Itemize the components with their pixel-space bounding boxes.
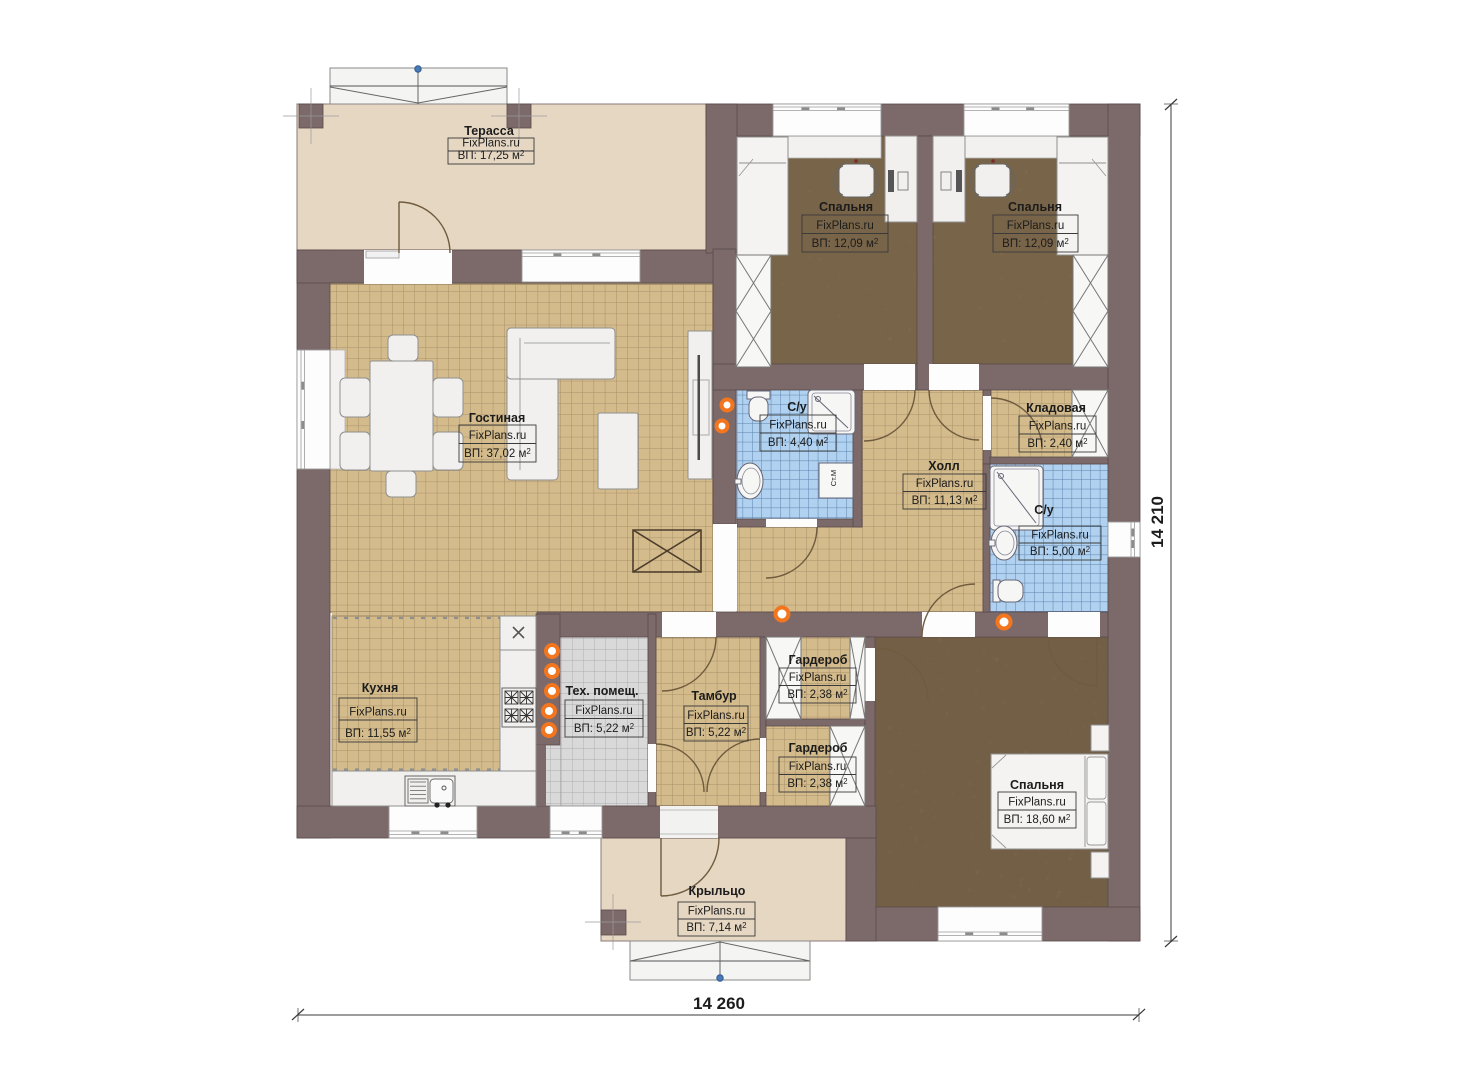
svg-text:ВП: 5,22 м2: ВП: 5,22 м2 [686,726,747,739]
svg-text:FixPlans.ru: FixPlans.ru [1029,421,1087,433]
svg-text:ВП: 7,14 м2: ВП: 7,14 м2 [686,921,747,934]
svg-text:FixPlans.ru: FixPlans.ru [1031,530,1089,542]
svg-text:ВП: 11,13 м2: ВП: 11,13 м2 [912,494,978,507]
svg-text:FixPlans.ru: FixPlans.ru [789,672,847,684]
svg-text:Крыльцо: Крыльцо [689,884,746,898]
svg-text:ВП: 12,09 м2: ВП: 12,09 м2 [812,237,879,250]
svg-text:FixPlans.ru: FixPlans.ru [916,478,974,490]
svg-text:ВП: 37,02 м2: ВП: 37,02 м2 [464,447,531,460]
svg-text:Гардероб: Гардероб [788,653,847,667]
svg-text:Гостиная: Гостиная [469,411,526,425]
svg-text:14 210: 14 210 [1148,496,1167,548]
svg-text:С/у: С/у [787,400,807,414]
svg-text:Ст.М: Ст.М [829,470,838,486]
svg-text:Терасса: Терасса [464,124,515,138]
svg-text:Тамбур: Тамбур [691,689,737,703]
svg-text:14 260: 14 260 [693,994,745,1013]
svg-text:FixPlans.ru: FixPlans.ru [469,430,527,442]
svg-text:FixPlans.ru: FixPlans.ru [687,710,745,722]
svg-text:Спальня: Спальня [1010,778,1064,792]
svg-text:Спальня: Спальня [819,200,873,214]
svg-text:Тех. помещ.: Тех. помещ. [566,684,639,698]
svg-text:Кухня: Кухня [362,681,399,695]
svg-text:Спальня: Спальня [1008,200,1062,214]
svg-text:ВП: 17,25 м2: ВП: 17,25 м2 [458,149,525,162]
svg-text:ВП: 18,60 м2: ВП: 18,60 м2 [1004,813,1071,826]
svg-text:FixPlans.ru: FixPlans.ru [816,220,874,232]
svg-text:FixPlans.ru: FixPlans.ru [1007,220,1065,232]
svg-text:FixPlans.ru: FixPlans.ru [688,906,746,918]
svg-text:FixPlans.ru: FixPlans.ru [462,138,520,150]
svg-text:ВП: 5,22 м2: ВП: 5,22 м2 [574,722,635,735]
svg-text:FixPlans.ru: FixPlans.ru [1008,797,1066,809]
svg-text:FixPlans.ru: FixPlans.ru [349,707,407,719]
svg-text:ВП: 2,38 м2: ВП: 2,38 м2 [787,777,848,790]
svg-text:Кладовая: Кладовая [1026,401,1086,415]
svg-text:ВП: 2,38 м2: ВП: 2,38 м2 [787,688,848,701]
svg-text:FixPlans.ru: FixPlans.ru [769,420,827,432]
svg-text:Холл: Холл [928,459,959,473]
svg-text:ВП: 12,09 м2: ВП: 12,09 м2 [1002,237,1069,250]
svg-text:ВП: 5,00 м2: ВП: 5,00 м2 [1030,545,1091,558]
svg-text:FixPlans.ru: FixPlans.ru [575,705,633,717]
svg-text:FixPlans.ru: FixPlans.ru [789,761,847,773]
svg-text:ВП: 4,40 м2: ВП: 4,40 м2 [768,436,829,449]
svg-text:ВП: 11,55 м2: ВП: 11,55 м2 [345,727,411,740]
svg-text:Гардероб: Гардероб [788,741,847,755]
svg-text:С/у: С/у [1034,503,1054,517]
svg-text:ВП: 2,40 м2: ВП: 2,40 м2 [1027,437,1088,450]
